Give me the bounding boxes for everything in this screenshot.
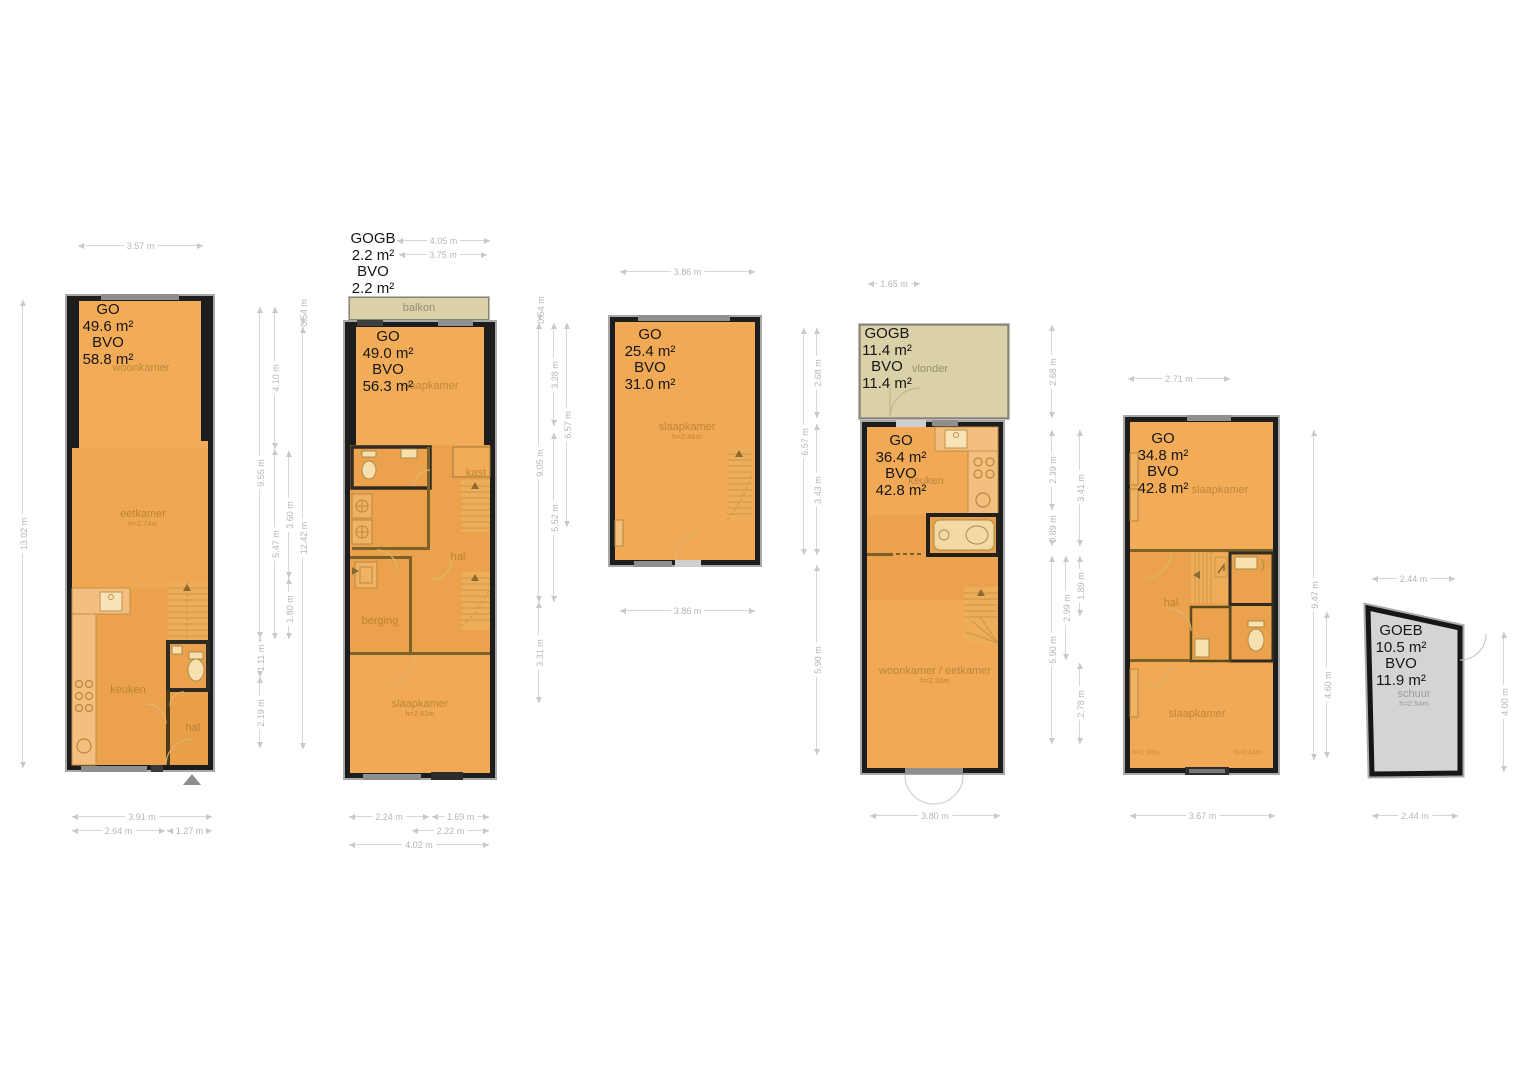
dim-u2-b1: 2.24 m	[349, 816, 429, 817]
dim-u3-r4: 5.90 m	[816, 565, 817, 755]
dim-u1-b3: 1.27 m	[167, 830, 212, 831]
go-label: GO	[605, 327, 695, 344]
dim-u4-r7: 1.89 m	[1079, 556, 1080, 616]
dim-u3-r3: 3.43 m	[816, 424, 817, 555]
room-label-kast: kast	[466, 467, 486, 479]
dim-u3-r2: 2.68 m	[816, 328, 817, 418]
goeb-label: GOEB	[1356, 623, 1446, 640]
dim-u6-top: 2.44 m	[1372, 578, 1455, 579]
room-label-keuken: keuken	[110, 684, 145, 696]
room-label-eetkamer: eetkamer h=2.74m	[120, 508, 166, 528]
room-height-right: h=2.44m	[1234, 750, 1261, 757]
bvo-label: BVO	[857, 466, 945, 483]
level-2-area-label: GO 49.0 m² BVO 56.3 m²	[344, 329, 432, 395]
dim-u1-r5: 5.47 m	[274, 449, 275, 639]
bvo-label: BVO	[62, 335, 154, 352]
bvo-label: BVO	[1356, 656, 1446, 673]
room-label-schuur: schuur h=2.54m	[1397, 688, 1430, 708]
bvo-label: BVO	[344, 362, 432, 379]
dim-u1-b1: 3.91 m	[72, 816, 212, 817]
dim-u5-r2: 4.60 m	[1326, 612, 1327, 758]
level-1-area-label: GO 49.6 m² BVO 58.8 m²	[62, 302, 154, 368]
entrance-marker	[183, 774, 201, 785]
gogb-label: GOGB	[330, 231, 416, 248]
gogb-value: 11.4 m²	[845, 343, 929, 360]
dim-u4-r3: 0.89 m	[1051, 512, 1052, 546]
dim-u1-r7: 1.80 m	[288, 578, 289, 639]
level-4-gogb-label: GOGB 11.4 m² BVO 11.4 m²	[845, 326, 929, 392]
room-height: h=2.56m	[879, 677, 991, 685]
dim-u2-r4: 3.28 m	[553, 323, 554, 426]
go-label: GO	[1118, 431, 1208, 448]
room-label-hal: hal	[186, 722, 201, 734]
level-5-area-label: GO 34.8 m² BVO 42.8 m²	[1118, 431, 1208, 497]
go-value: 49.6 m²	[62, 319, 154, 336]
go-label: GO	[62, 302, 154, 319]
dim-u3-top: 3.86 m	[620, 271, 755, 272]
room-height: h=2.46m	[659, 433, 716, 441]
schuur-area-label: GOEB 10.5 m² BVO 11.9 m²	[1356, 623, 1446, 689]
dim-u1-b2: 2.64 m	[72, 830, 165, 831]
dim-u1-r9: 12.42 m	[302, 327, 303, 749]
level-4-area-label: GO 36.4 m² BVO 42.8 m²	[857, 433, 945, 499]
bvo-label: BVO	[1118, 464, 1208, 481]
go-label: GO	[857, 433, 945, 450]
dim-u1-r2: 1.11 m	[259, 638, 260, 677]
dim-u1-r4: 4.10 m	[274, 307, 275, 449]
bvo-label: BVO	[605, 360, 695, 377]
bvo-value: 31.0 m²	[605, 377, 695, 394]
dim-u1-r6: 3.60 m	[288, 451, 289, 578]
dim-u4-r6: 3.41 m	[1079, 430, 1080, 546]
room-height: h=2.62m	[392, 710, 449, 718]
dim-u4-top: 1.65 m	[868, 283, 920, 284]
dim-u3-r1: 6.57 m	[803, 328, 804, 555]
go-value: 49.0 m²	[344, 346, 432, 363]
level-2-gogb-label: GOGB 2.2 m² BVO 2.2 m²	[330, 231, 416, 297]
goeb-value: 10.5 m²	[1356, 640, 1446, 657]
bvo-value: 42.8 m²	[857, 483, 945, 500]
dim-u6-right: 4.00 m	[1503, 632, 1504, 772]
dim-u4-r4: 5.90 m	[1051, 556, 1052, 744]
room-label-woonkamer-eetkamer: woonkamer / eetkamer h=2.56m	[879, 665, 991, 685]
dim-u2-r5: 5.52 m	[553, 433, 554, 602]
dim-u2-b4: 4.02 m	[349, 844, 489, 845]
dim-u2-b3: 2.22 m	[412, 830, 489, 831]
bvo-value: 11.4 m²	[845, 376, 929, 393]
dim-u4-r8: 2.78 m	[1079, 663, 1080, 744]
bvo-value: 56.3 m²	[344, 379, 432, 396]
dim-u4-r1: 2.68 m	[1051, 325, 1052, 418]
bvo-value: 2.2 m²	[330, 281, 416, 298]
gogb-value: 2.2 m²	[330, 248, 416, 265]
dim-u1-r8: 0.54 m	[302, 301, 303, 325]
dim-u5-r1: 9.47 m	[1313, 430, 1314, 760]
room-label-slaapkamer: slaapkamer	[1169, 708, 1226, 720]
dim-u3-bottom: 3.86 m	[620, 610, 755, 611]
dim-u1-r1: 9.55 m	[259, 307, 260, 638]
dim-u4-bottom: 3.80 m	[870, 815, 1000, 816]
room-label-hal: hal	[1164, 597, 1179, 609]
dim-u2-r2: 9.05 m	[538, 323, 539, 602]
dim-u1-left: 13.02 m	[22, 300, 23, 768]
room-height-left: h=1.98m	[1132, 750, 1159, 757]
dim-u5-bottom: 3.67 m	[1130, 815, 1275, 816]
dim-u2-r6: 6.57 m	[566, 323, 567, 527]
dim-u1-top: 3.57 m	[78, 245, 203, 246]
room-height: h=2.54m	[1397, 700, 1430, 708]
dim-u2-r3: 3.31 m	[538, 602, 539, 703]
bvo-value: 58.8 m²	[62, 352, 154, 369]
dim-u2-r1: 0.54 m	[539, 299, 540, 321]
room-label-slaapkamer: slaapkamer h=2.46m	[659, 421, 716, 441]
bvo-value: 42.8 m²	[1118, 481, 1208, 498]
dim-u5-top: 2.71 m	[1128, 378, 1230, 379]
room-label-balkon: balkon	[403, 302, 435, 314]
dim-u4-r5: 2.99 m	[1065, 556, 1066, 660]
room-label-berging: berging	[362, 615, 399, 627]
level-3-area-label: GO 25.4 m² BVO 31.0 m²	[605, 327, 695, 393]
go-label: GO	[344, 329, 432, 346]
dim-u6-bottom: 2.44 m	[1372, 815, 1458, 816]
go-value: 36.4 m²	[857, 450, 945, 467]
bvo-value: 11.9 m²	[1356, 673, 1446, 690]
room-label-slaapkamer: slaapkamer h=2.62m	[392, 698, 449, 718]
dim-u4-r2: 2.39 m	[1051, 430, 1052, 510]
go-value: 34.8 m²	[1118, 448, 1208, 465]
dim-u2-b2: 1.69 m	[432, 816, 489, 817]
go-value: 25.4 m²	[605, 344, 695, 361]
dim-u1-r3: 2.19 m	[259, 677, 260, 748]
floorplan-canvas: GO 49.6 m² BVO 58.8 m² woonkamer eetkame…	[0, 0, 1527, 1080]
bvo-label: BVO	[845, 359, 929, 376]
room-height: h=2.74m	[120, 520, 166, 528]
room-label-hal: hal	[451, 551, 466, 563]
bvo-label: BVO	[330, 264, 416, 281]
gogb-label: GOGB	[845, 326, 929, 343]
